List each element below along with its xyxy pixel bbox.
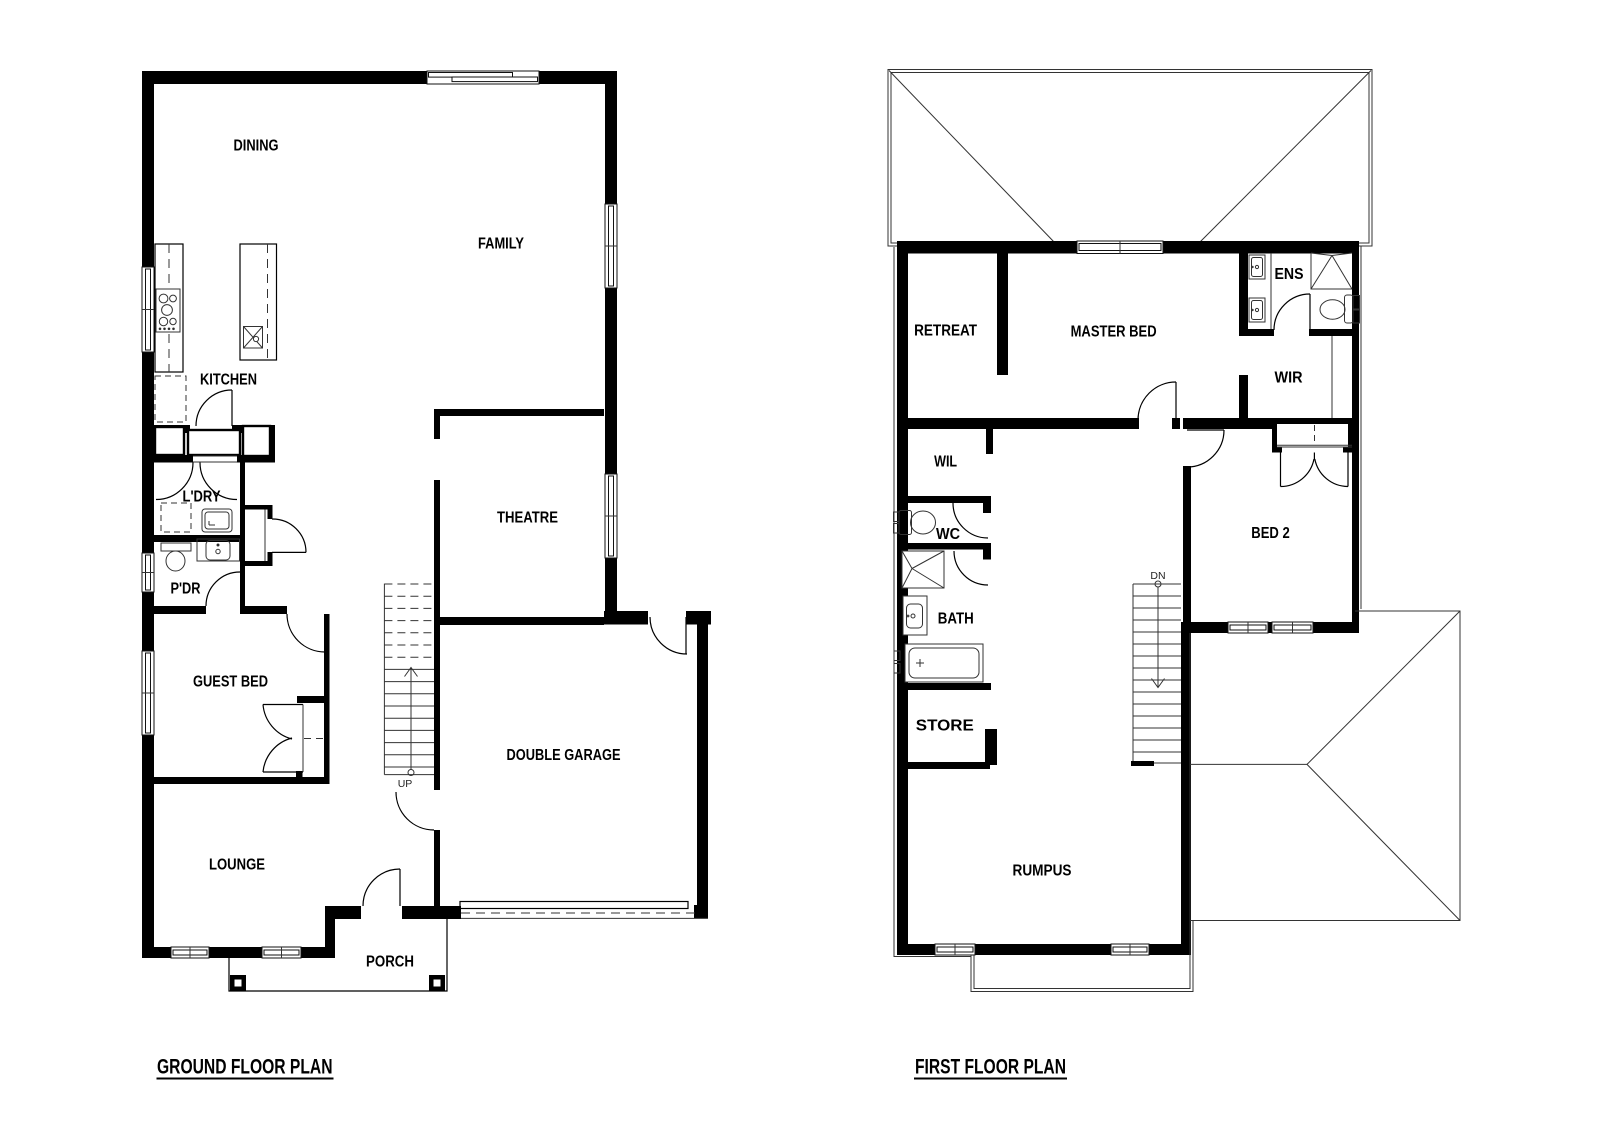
svg-text:STORE: STORE: [916, 718, 974, 735]
svg-text:KITCHEN: KITCHEN: [200, 372, 257, 389]
svg-text:GROUND FLOOR PLAN: GROUND FLOOR PLAN: [157, 1055, 333, 1079]
svg-text:RUMPUS: RUMPUS: [1013, 863, 1072, 880]
svg-text:L'DRY: L'DRY: [183, 489, 221, 506]
svg-text:LOUNGE: LOUNGE: [209, 857, 265, 874]
svg-text:WIR: WIR: [1275, 370, 1303, 387]
svg-text:RETREAT: RETREAT: [914, 323, 977, 340]
svg-text:BATH: BATH: [938, 611, 974, 628]
svg-text:BED 2: BED 2: [1251, 525, 1290, 542]
svg-text:FIRST FLOOR PLAN: FIRST FLOOR PLAN: [915, 1055, 1066, 1079]
svg-text:FAMILY: FAMILY: [478, 236, 524, 253]
svg-text:DOUBLE GARAGE: DOUBLE GARAGE: [507, 747, 621, 764]
svg-text:THEATRE: THEATRE: [497, 510, 558, 527]
svg-text:ENS: ENS: [1275, 266, 1304, 283]
svg-text:DN: DN: [1150, 570, 1165, 582]
svg-text:P'DR: P'DR: [171, 581, 201, 598]
svg-text:UP: UP: [398, 778, 413, 790]
svg-text:MASTER BED: MASTER BED: [1071, 324, 1157, 341]
svg-text:WIL: WIL: [934, 454, 957, 471]
svg-text:PORCH: PORCH: [366, 954, 414, 971]
svg-text:GUEST BED: GUEST BED: [193, 674, 268, 691]
svg-text:WC: WC: [936, 526, 960, 543]
svg-text:DINING: DINING: [234, 138, 279, 155]
